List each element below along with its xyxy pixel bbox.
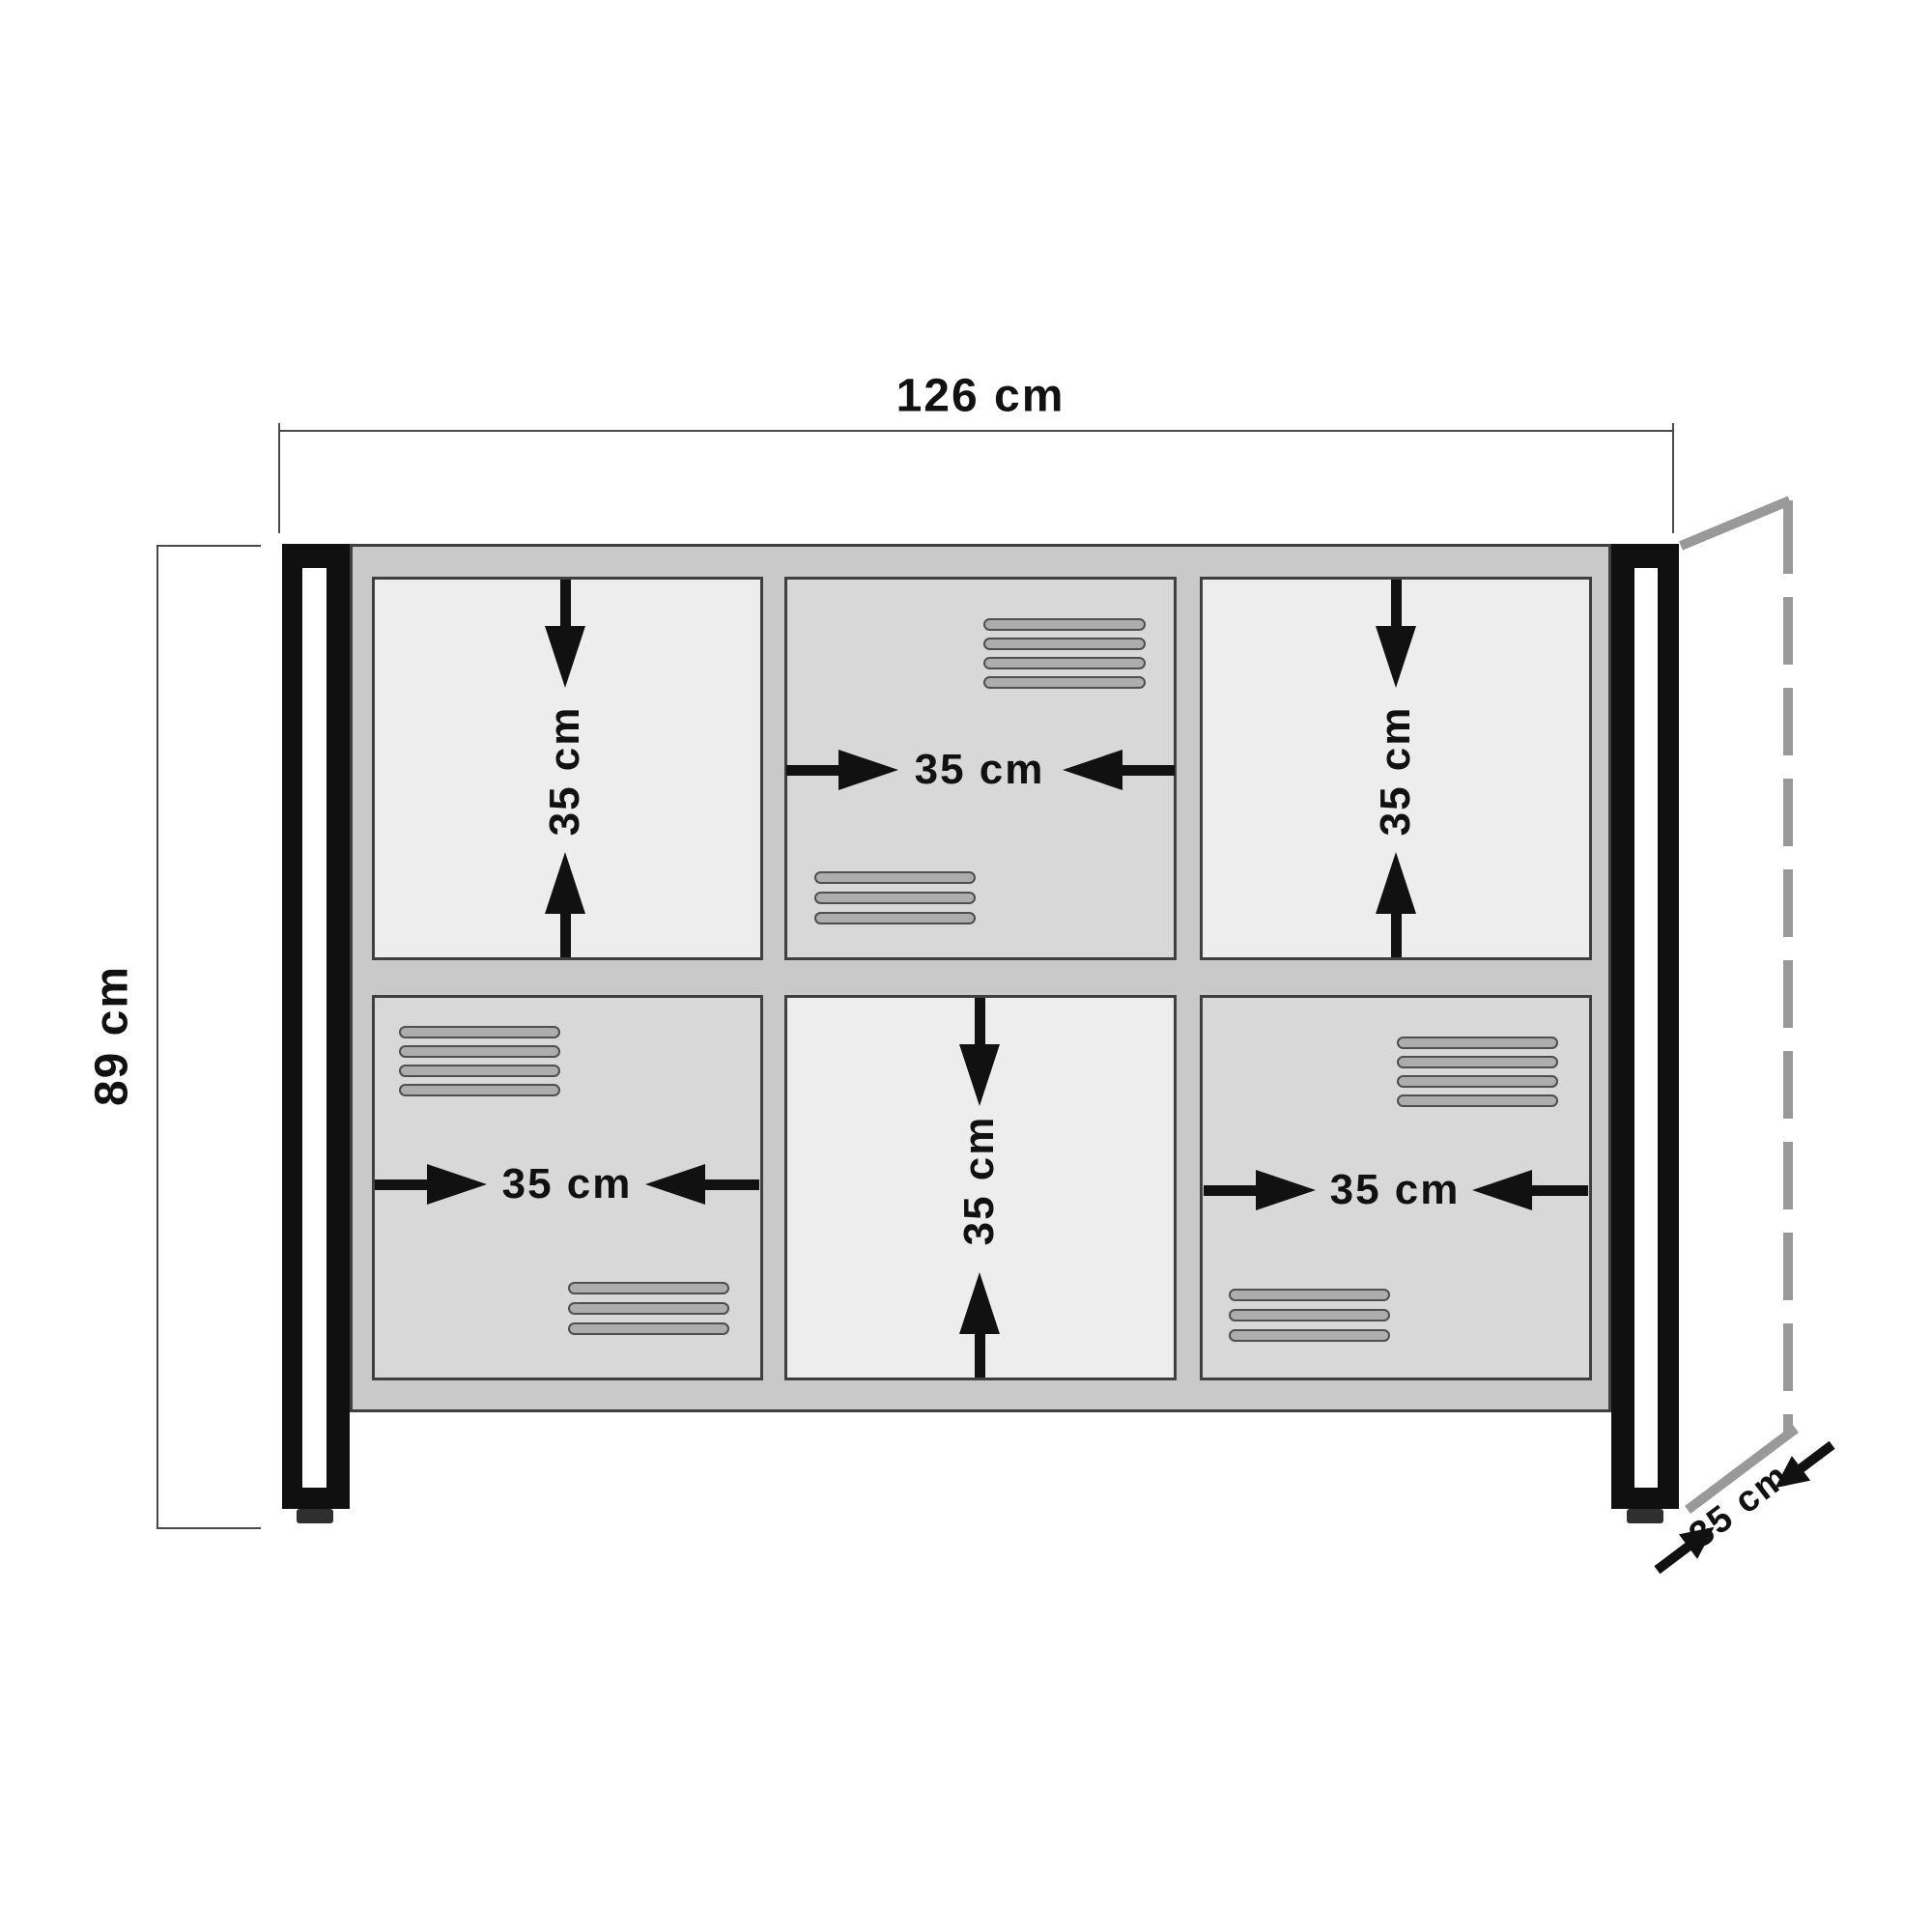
- vent-slat: [399, 1026, 560, 1038]
- height-dimension-bottom-tick: [156, 1527, 261, 1529]
- vent-slat: [983, 657, 1146, 669]
- vent-slat: [1397, 1037, 1558, 1049]
- vent-slat: [983, 676, 1146, 689]
- vent-slat: [399, 1084, 560, 1096]
- right-arrow-icon: [1204, 1185, 1260, 1196]
- depth-back-edge-solid: [1783, 500, 1793, 574]
- left-arrow-icon: [1119, 765, 1175, 776]
- width-dimension-right-tick: [1672, 423, 1674, 533]
- right-arrow-icon: [786, 765, 842, 776]
- down-arrow-icon: [1391, 580, 1402, 630]
- compartment-height-label: 35 cm: [955, 1116, 1004, 1246]
- vent-slat: [568, 1282, 729, 1294]
- height-dimension-top-tick: [156, 545, 261, 547]
- left-arrow-icon: [1528, 1185, 1588, 1196]
- vent-slat: [399, 1045, 560, 1058]
- vent-slat: [1229, 1329, 1390, 1342]
- left-leg-stripe: [302, 568, 327, 1488]
- vent-slat: [1229, 1309, 1390, 1321]
- vent-slat: [1397, 1075, 1558, 1088]
- width-dimension-left-tick: [278, 423, 280, 533]
- vent-slat: [1397, 1056, 1558, 1068]
- left-leg: [282, 544, 350, 1509]
- down-arrow-icon: [560, 580, 571, 630]
- vent-slat: [983, 618, 1146, 631]
- vent-slat: [1397, 1094, 1558, 1107]
- vent-slat: [814, 871, 976, 884]
- right-leg: [1611, 544, 1679, 1509]
- depth-top-edge-line: [1679, 496, 1791, 550]
- height-dimension-label: 89 cm: [86, 965, 139, 1106]
- height-dimension-line: [156, 545, 158, 1529]
- compartment-width-label: 35 cm: [502, 1160, 633, 1208]
- right-leg-stripe: [1634, 568, 1658, 1488]
- up-arrow-icon: [560, 910, 571, 957]
- vent-slat: [568, 1302, 729, 1315]
- arrow-shaft: [1795, 1441, 1834, 1474]
- compartment-width-label: 35 cm: [915, 746, 1045, 794]
- vent-slat: [814, 912, 976, 924]
- vent-slat: [1229, 1289, 1390, 1301]
- depth-back-edge-dashed: [1783, 574, 1793, 1433]
- up-arrow-icon: [1391, 910, 1402, 957]
- vent-slat: [568, 1322, 729, 1335]
- compartment-height-label: 35 cm: [1372, 706, 1420, 837]
- down-arrow-icon: [975, 998, 985, 1048]
- left-leg-foot: [297, 1509, 333, 1523]
- right-arrow-icon: [375, 1179, 431, 1190]
- left-arrow-icon: [701, 1179, 759, 1190]
- width-dimension-label: 126 cm: [896, 370, 1065, 423]
- width-dimension-line: [278, 430, 1674, 432]
- right-leg-foot: [1627, 1509, 1663, 1523]
- dimension-diagram: 126 cm 89 cm 35 cm: [0, 0, 1932, 1932]
- compartment-width-label: 35 cm: [1330, 1166, 1461, 1214]
- vent-slat: [983, 638, 1146, 650]
- up-arrow-icon: [975, 1330, 985, 1378]
- vent-slat: [399, 1065, 560, 1077]
- compartment-height-label: 35 cm: [541, 706, 589, 837]
- vent-slat: [814, 892, 976, 904]
